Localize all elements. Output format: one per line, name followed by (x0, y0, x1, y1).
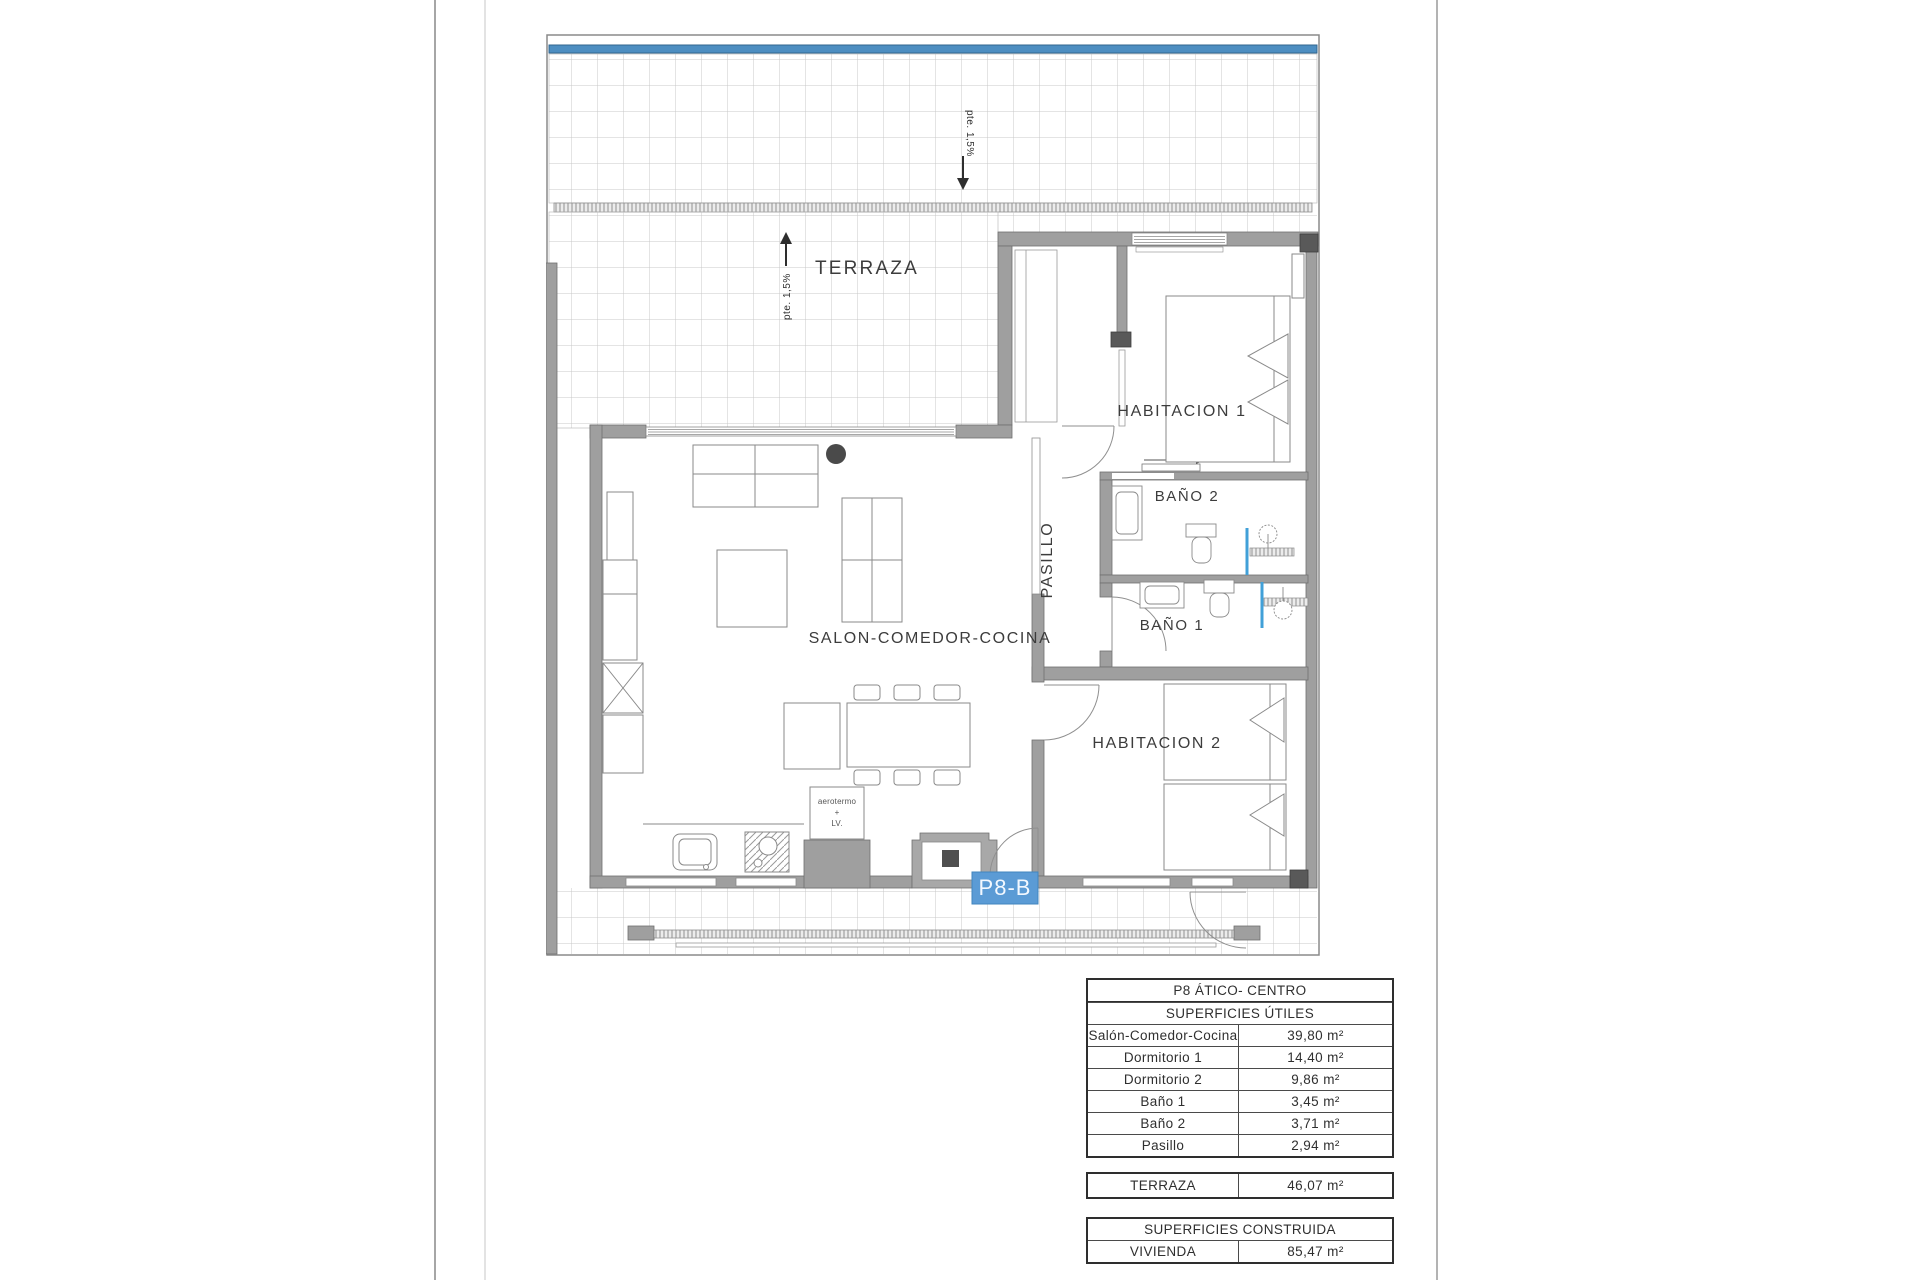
appliance-note-1: aerotermo (818, 797, 857, 806)
table-row: Baño 13,45 m² (1088, 1090, 1392, 1112)
window-bedroom2-2 (1192, 878, 1233, 886)
fridge (603, 560, 637, 660)
bed-double (1166, 296, 1290, 462)
label-habitacion1: HABITACION 1 (1117, 403, 1246, 420)
closet-shelf (1292, 254, 1304, 298)
terrace-area-table: TERRAZA46,07 m² (1086, 1172, 1394, 1199)
kitchen-appliance-pedestal (804, 840, 870, 888)
door-mat (942, 850, 959, 867)
row-value: 9,86 m² (1239, 1069, 1392, 1090)
label-pasillo: PASILLO (1039, 522, 1056, 599)
slope-text: pte. 1,5% (964, 110, 975, 157)
terrace-drain-channel (554, 203, 1312, 212)
sofa (693, 445, 818, 507)
wall-baths-left-a (1100, 480, 1112, 575)
sink (1112, 486, 1142, 540)
label-bano2: BAÑO 2 (1155, 488, 1220, 505)
shower-bar (1250, 548, 1294, 556)
bed-single-b (1164, 784, 1286, 870)
balustrade-band (549, 45, 1317, 53)
kitchen-island (784, 703, 840, 769)
label-salon: SALON-COMEDOR-COCINA (809, 630, 1052, 647)
sink (1140, 582, 1184, 608)
label-habitacion2: HABITACION 2 (1092, 735, 1221, 752)
row-label: Salón-Comedor-Cocina (1088, 1025, 1239, 1046)
table-row: Dormitorio 114,40 m² (1088, 1046, 1392, 1068)
appliance-note-2: + (835, 808, 840, 817)
wall-gallery-stub-left (628, 926, 654, 940)
row-label: Dormitorio 1 (1088, 1047, 1239, 1068)
useful-areas-table: P8 ÁTICO- CENTRO SUPERFICIES ÚTILES Saló… (1086, 978, 1394, 1158)
built-areas-header: SUPERFICIES CONSTRUIDA (1088, 1219, 1392, 1240)
row-value: 2,94 m² (1239, 1135, 1392, 1156)
row-label: Dormitorio 2 (1088, 1069, 1239, 1090)
floor-plan: pte. 1,5% pte. 1,5% TERRAZA HABITACION 1… (546, 34, 1320, 956)
dining-table (847, 685, 970, 785)
label-terraza: TERRAZA (815, 258, 919, 279)
wall-baths-left-b2 (1100, 651, 1112, 667)
wall-bedroom2-top (1032, 667, 1308, 680)
page: pte. 1,5% pte. 1,5% TERRAZA HABITACION 1… (0, 0, 1920, 1280)
table-row: VIVIENDA85,47 m² (1088, 1240, 1392, 1262)
row-value: 39,80 m² (1239, 1025, 1392, 1046)
slope-text: pte. 1,5% (782, 273, 793, 320)
base-cabinet (603, 715, 643, 773)
table-title: P8 ÁTICO- CENTRO (1088, 980, 1392, 1002)
coffee-table (717, 550, 787, 627)
gallery-railing-hatch (636, 930, 1246, 938)
appliance-note-3: LV. (831, 819, 842, 828)
wall-salon-top-stub-right (956, 425, 1012, 438)
row-value: 85,47 m² (1239, 1241, 1392, 1262)
row-label: Baño 1 (1088, 1091, 1239, 1112)
table-row: Salón-Comedor-Cocina39,80 m² (1088, 1024, 1392, 1046)
unit-badge: P8-B (972, 872, 1038, 904)
wall-right-outer (1306, 246, 1317, 888)
gallery-tiles (549, 888, 1317, 954)
window-bedroom1 (1132, 233, 1227, 245)
chaise (842, 498, 902, 622)
unit-badge-label: P8-B (979, 875, 1032, 900)
row-label: Pasillo (1088, 1135, 1239, 1156)
label-bano1: BAÑO 1 (1140, 617, 1205, 634)
row-label: Baño 2 (1088, 1113, 1239, 1134)
wall-baths-left-b1 (1100, 583, 1112, 597)
wall-terrace-parapet (546, 263, 557, 954)
sheet-fold-line-right (1436, 0, 1438, 1280)
row-value: 3,45 m² (1239, 1091, 1392, 1112)
row-value: 3,71 m² (1239, 1113, 1392, 1134)
sheet-fold-line-left-light (484, 0, 486, 1280)
wall-bottom-right (1038, 876, 1308, 888)
wall-gallery-stub-right (1234, 926, 1260, 940)
window-kitchen-1 (626, 878, 716, 886)
bedroom2-furniture (1164, 684, 1286, 870)
cooktop (745, 832, 789, 872)
wall-left-outer (590, 425, 602, 888)
pantry-shaft (603, 663, 643, 713)
column (826, 444, 846, 464)
row-label: VIVIENDA (1088, 1241, 1239, 1262)
sheet-fold-line-left (434, 0, 436, 1280)
table-row: Baño 23,71 m² (1088, 1112, 1392, 1134)
table-row: Dormitorio 29,86 m² (1088, 1068, 1392, 1090)
useful-areas-header: SUPERFICIES ÚTILES (1088, 1002, 1392, 1024)
wall-bedroom1-closet (1117, 246, 1127, 346)
window-bedroom2-1 (1083, 878, 1170, 886)
table-row: Pasillo2,94 m² (1088, 1134, 1392, 1156)
sink (673, 834, 717, 870)
row-value: 14,40 m² (1239, 1047, 1392, 1068)
table-row: TERRAZA46,07 m² (1088, 1174, 1392, 1197)
window-kitchen-2 (736, 878, 796, 886)
wall-hall-left (998, 246, 1012, 425)
row-value: 46,07 m² (1239, 1174, 1392, 1197)
row-label: TERRAZA (1088, 1174, 1239, 1197)
built-areas-table: SUPERFICIES CONSTRUIDA VIVIENDA85,47 m² (1086, 1217, 1394, 1264)
